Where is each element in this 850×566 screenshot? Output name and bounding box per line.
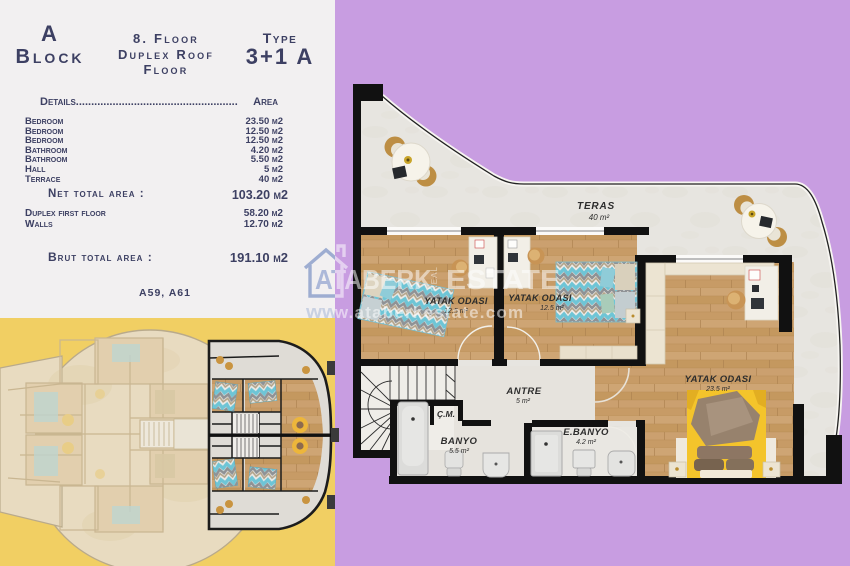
svg-text:BANYO: BANYO [441,436,478,447]
svg-text:ANTRE: ANTRE [505,386,541,397]
svg-text:E.BANYO: E.BANYO [563,427,609,438]
svg-text:23.5 m²: 23.5 m² [705,386,730,393]
svg-text:www.ataberkestate.com: www.ataberkestate.com [305,303,524,322]
svg-text:12.5 m²: 12.5 m² [540,305,564,312]
svg-text:5.5 m²: 5.5 m² [449,448,470,455]
svg-text:REAL: REAL [430,266,439,291]
svg-text:YATAK ODASI: YATAK ODASI [685,374,752,385]
svg-text:ESTATE: ESTATE [446,264,560,295]
svg-text:TERAS: TERAS [577,201,615,212]
svg-text:40 m²: 40 m² [589,213,610,222]
svg-text:5 m²: 5 m² [516,398,531,405]
svg-text:Ç.M.: Ç.M. [437,409,455,419]
svg-text:4.2 m²: 4.2 m² [576,439,597,446]
